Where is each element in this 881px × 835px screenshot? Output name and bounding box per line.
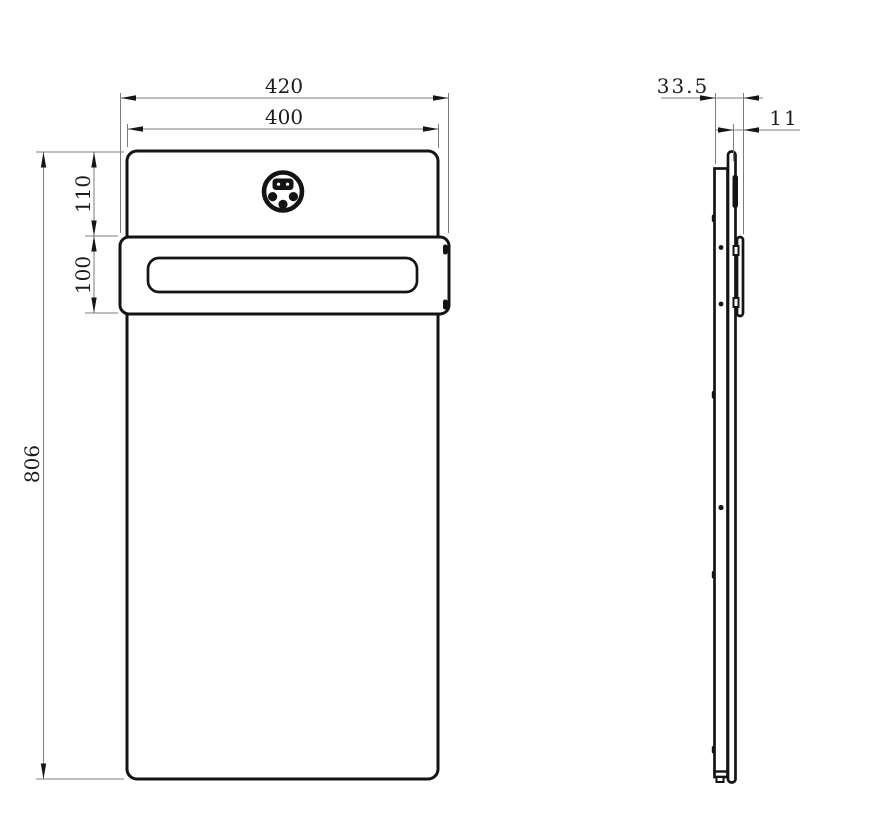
front-bracket-slot [148,258,417,292]
side-front-face-stud [712,215,715,223]
connector-pin-bottom [278,200,287,209]
side-fastener-dot [719,302,724,307]
arrow-806-top [41,152,46,168]
arrow-11-left [718,127,734,132]
arrow-420-left [121,95,137,100]
dim-label-bracket-width: 420 [265,74,303,98]
front-view [120,151,449,779]
arrow-11-right [744,127,760,132]
side-front-face-stud [712,746,715,754]
arrow-400-left [128,126,144,131]
dim-label-total-depth: 33.5 [657,74,710,98]
bracket-keyhole-bottom [443,300,448,310]
side-bracket-tab-bottom [734,298,739,307]
dim-label-top-offset: 110 [71,175,95,213]
side-panel-slab [715,169,728,778]
dim-label-bracket-height: 100 [71,256,95,294]
connector-pin-hole-right [286,183,289,186]
side-front-face-stud [712,571,715,579]
bracket-keyhole-top [443,245,448,255]
side-junction-strip [733,175,739,208]
arrow-110-top [91,152,96,168]
arrow-33-5-right [744,95,760,100]
panel-drawing: 420 400 110 100 806 [0,0,881,835]
dim-label-panel-width: 400 [265,105,303,129]
side-front-face-stud [712,391,715,399]
arrow-420-right [433,95,449,100]
side-view [712,152,743,783]
arrow-100-bottom [91,298,96,314]
connector-pin-right [289,192,298,201]
side-panel-foot [717,777,724,782]
arrow-400-right [423,126,439,131]
connector-pin-left [268,192,277,201]
dim-label-panel-height: 806 [20,445,44,483]
side-bracket-tab-top [734,246,739,255]
arrow-100-top [91,236,96,252]
side-fastener-dot [718,505,723,510]
arrow-806-bottom [41,764,46,780]
connector-top-pin-block [273,179,294,191]
side-fastener-dot [719,245,724,250]
technical-drawing-canvas: 420 400 110 100 806 [0,0,881,835]
connector-pin-hole-left [277,183,280,186]
dim-label-bracket-depth: 11 [769,106,798,130]
arrow-110-bottom [91,221,96,237]
